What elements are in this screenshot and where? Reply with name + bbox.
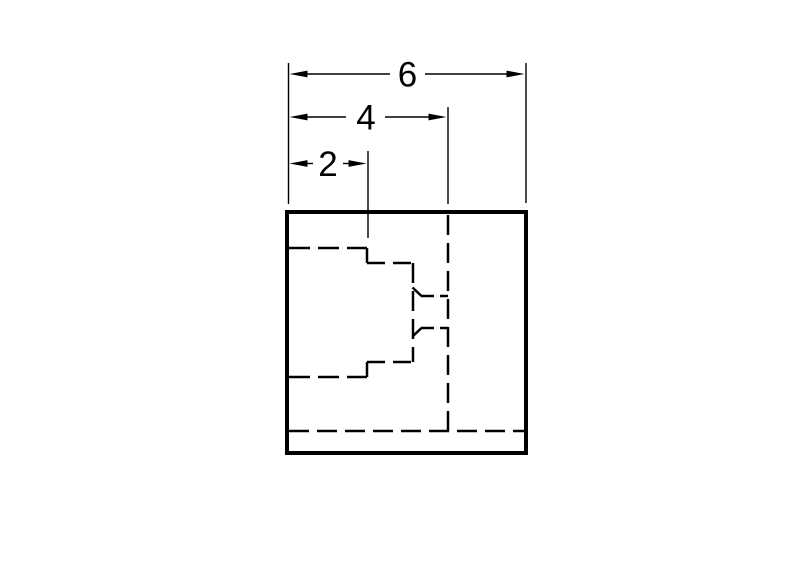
dimension-4-arrowhead-right xyxy=(429,114,447,121)
dimension-4-arrowhead-left xyxy=(290,114,308,121)
dimension-2: 2 xyxy=(290,145,367,184)
dimension-6-label: 6 xyxy=(398,56,417,95)
dimension-4-label: 4 xyxy=(356,99,375,138)
dimension-2-label: 2 xyxy=(318,145,337,184)
dimension-2-arrowhead-right xyxy=(349,160,367,167)
drawing-page: 6 4 2 xyxy=(0,0,800,576)
drawing-canvas: 6 4 2 xyxy=(0,0,800,576)
dimension-4: 4 xyxy=(290,99,447,138)
dimension-2-arrowhead-left xyxy=(290,160,308,167)
dimension-6-arrowhead-left xyxy=(290,71,308,78)
hidden-feature-lines xyxy=(289,215,524,431)
dimension-6: 6 xyxy=(290,56,525,95)
dimension-6-arrowhead-right xyxy=(507,71,525,78)
